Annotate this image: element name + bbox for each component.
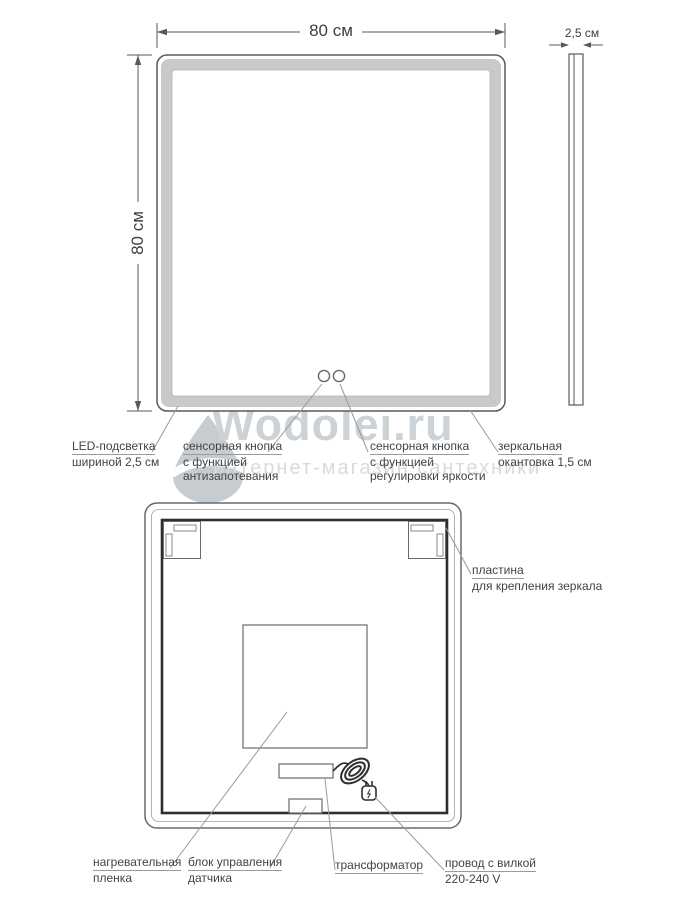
label-line: 220-240 V — [445, 872, 536, 887]
label-mirror-edge: зеркальная окантовка 1,5 см — [498, 439, 592, 469]
label-transformer: трансформатор — [335, 858, 423, 874]
dim-arrow-right — [495, 29, 505, 35]
label-led-backlight: LED-подсветка шириной 2,5 см — [72, 439, 159, 469]
mounting-plate-right — [409, 522, 446, 559]
dim-width-text: 80 см — [300, 21, 362, 41]
label-line: сенсорная кнопка — [370, 439, 469, 455]
label-line: LED-подсветка — [72, 439, 155, 455]
transformer — [279, 764, 333, 778]
label-line: зеркальная — [498, 439, 562, 455]
mirror-spec-diagram: Wodolei.ru интернет-магазин сантехники — [0, 0, 675, 900]
dim-arrow-up — [135, 55, 141, 65]
touch-button-brightness — [333, 370, 344, 381]
back-view — [145, 503, 461, 828]
side-view — [569, 54, 583, 405]
label-line: пленка — [93, 871, 181, 886]
label-line: с функцией — [183, 455, 282, 470]
label-power-cord: провод с вилкой 220-240 V — [445, 856, 536, 886]
label-touch-antifog: сенсорная кнопка с функцией антизапотева… — [183, 439, 282, 484]
dim-depth-text: 2,5 см — [563, 26, 601, 40]
dim-arrow-in-left — [561, 42, 569, 48]
label-line: с функцией — [370, 455, 486, 470]
label-line: датчика — [188, 871, 282, 886]
mounting-plate-left — [164, 522, 201, 559]
label-line: для крепления зеркала — [472, 579, 602, 594]
label-control-block: блок управления датчика — [188, 855, 282, 885]
label-line: антизапотевания — [183, 469, 282, 484]
front-view — [157, 55, 505, 411]
dim-arrow-left — [157, 29, 167, 35]
label-line: провод с вилкой — [445, 856, 536, 872]
plate-slot-vertical — [437, 534, 443, 556]
label-line: сенсорная кнопка — [183, 439, 282, 455]
label-line: окантовка 1,5 см — [498, 455, 592, 470]
label-touch-brightness: сенсорная кнопка с функцией регулировки … — [370, 439, 486, 484]
label-heating-film: нагревательная пленка — [93, 855, 181, 885]
dim-height-text: 80 см — [128, 202, 148, 264]
label-line: нагревательная — [93, 855, 181, 871]
label-line: шириной 2,5 см — [72, 455, 159, 470]
label-line: регулировки яркости — [370, 469, 486, 484]
dim-arrow-in-right — [583, 42, 591, 48]
dim-arrow-down — [135, 401, 141, 411]
touch-button-antifog — [318, 370, 329, 381]
side-profile — [569, 54, 583, 405]
plate-slot-horizontal — [411, 525, 433, 531]
label-mounting-plate: пластина для крепления зеркала — [472, 563, 602, 593]
mirror-glass-area — [172, 70, 490, 396]
label-line: блок управления — [188, 855, 282, 871]
heating-film — [243, 625, 367, 748]
label-line: трансформатор — [335, 858, 423, 874]
plate-slot-horizontal — [174, 525, 196, 531]
label-line: пластина — [472, 563, 524, 579]
plate-slot-vertical — [166, 534, 172, 556]
